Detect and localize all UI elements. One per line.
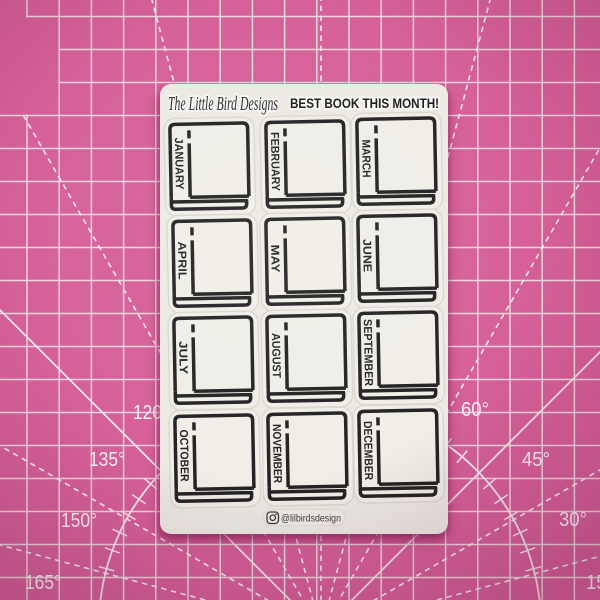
svg-text:@lilbirdsdesign: @lilbirdsdesign [281, 513, 341, 524]
svg-text:SEPTEMBER: SEPTEMBER [360, 319, 374, 387]
svg-text:150°: 150° [61, 510, 97, 532]
svg-text:NOVEMBER: NOVEMBER [270, 424, 284, 484]
svg-text:60°: 60° [461, 399, 489, 421]
svg-text:JULY: JULY [176, 341, 190, 375]
svg-text:JANUARY: JANUARY [172, 137, 186, 189]
svg-text:DECEMBER: DECEMBER [361, 421, 375, 481]
svg-text:MARCH: MARCH [359, 139, 373, 177]
svg-text:AUGUST: AUGUST [269, 333, 283, 378]
svg-text:30°: 30° [559, 509, 587, 531]
svg-text:15°: 15° [586, 572, 600, 594]
svg-text:165°: 165° [25, 572, 61, 594]
svg-text:APRIL: APRIL [175, 242, 189, 280]
svg-text:OCTOBER: OCTOBER [177, 429, 191, 482]
svg-text:135°: 135° [89, 449, 125, 471]
svg-text:45°: 45° [522, 449, 550, 471]
svg-text:BEST BOOK THIS MONTH!: BEST BOOK THIS MONTH! [290, 96, 439, 111]
svg-text:MAY: MAY [268, 245, 282, 274]
svg-text:JUNE: JUNE [360, 239, 374, 273]
svg-text:FEBRUARY: FEBRUARY [267, 131, 281, 190]
